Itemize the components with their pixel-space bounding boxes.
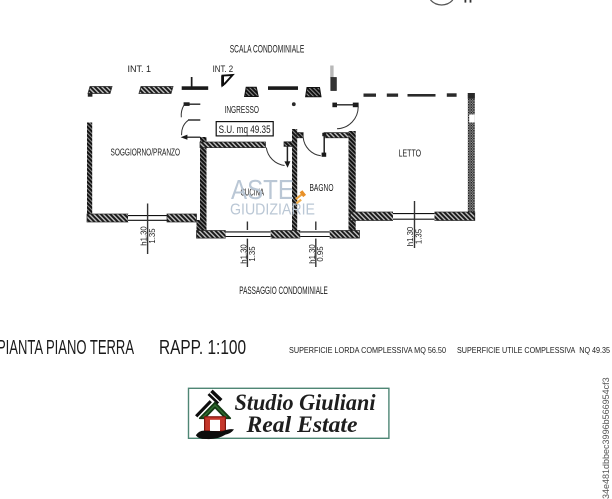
svg-text:LETTO: LETTO <box>399 149 422 160</box>
svg-text:34e481dbbec3996b566954cf3: 34e481dbbec3996b566954cf3 <box>601 377 611 499</box>
svg-text:GIUDIZIARIE: GIUDIZIARIE <box>230 202 315 219</box>
svg-text:SUPERFICIE UTILE COMPLESSIVA: SUPERFICIE UTILE COMPLESSIVA NQ 49.35 <box>457 345 610 355</box>
svg-text:PASSAGGIO CONDOMINIALE: PASSAGGIO CONDOMINIALE <box>239 285 328 297</box>
svg-text:ASTE: ASTE <box>231 174 294 205</box>
svg-text:1.35: 1.35 <box>148 228 157 244</box>
svg-text:1.35: 1.35 <box>414 228 423 244</box>
svg-text:BAGNO: BAGNO <box>310 183 334 194</box>
svg-text:INT. 2: INT. 2 <box>213 64 234 74</box>
svg-text:INT. 1: INT. 1 <box>128 64 152 74</box>
svg-text:S.U. mq 49.35: S.U. mq 49.35 <box>219 124 271 136</box>
svg-text:RAPP. 1:100: RAPP. 1:100 <box>159 337 246 359</box>
svg-text:INGRESSO: INGRESSO <box>225 105 260 116</box>
svg-text:h1.30: h1.30 <box>139 226 148 246</box>
svg-text:SOGGIORNO/PRANZO: SOGGIORNO/PRANZO <box>111 147 181 158</box>
svg-text:0.95: 0.95 <box>316 246 325 262</box>
svg-text:h1.30: h1.30 <box>239 244 248 264</box>
svg-text:h1.30: h1.30 <box>308 244 317 264</box>
svg-text:h1.30: h1.30 <box>406 226 415 246</box>
svg-text:SCALA CONDOMINIALE: SCALA CONDOMINIALE <box>230 43 305 55</box>
svg-text:PIANTA PIANO TERRA: PIANTA PIANO TERRA <box>0 337 134 359</box>
svg-text:SUPERFICIE LORDA COMPLESSIVA M: SUPERFICIE LORDA COMPLESSIVA MQ 56.50 <box>289 345 446 355</box>
svg-text:Real Estate: Real Estate <box>245 412 357 438</box>
svg-text:1.35: 1.35 <box>248 246 257 262</box>
